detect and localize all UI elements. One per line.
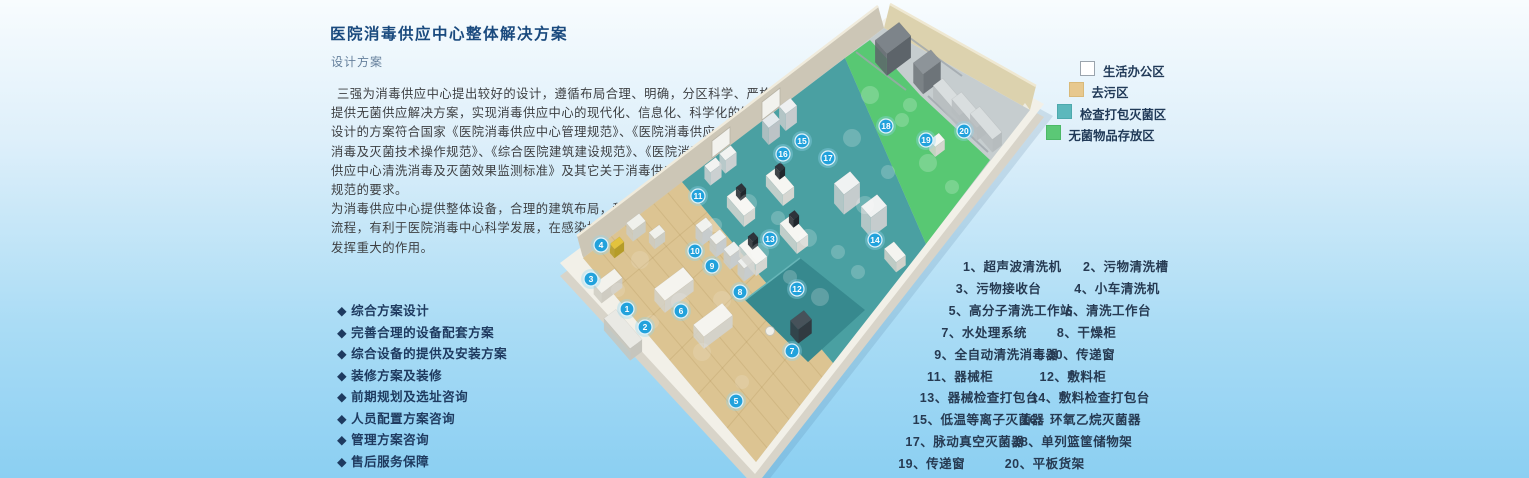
floor-marker-20: 20 [954, 121, 974, 141]
floor-marker-8: 8 [730, 282, 750, 302]
svg-text:4: 4 [599, 240, 604, 250]
floor-marker-10: 10 [685, 241, 705, 261]
floor-marker-13: 13 [760, 229, 780, 249]
floor-marker-7: 7 [782, 341, 802, 361]
svg-text:7: 7 [790, 346, 795, 356]
svg-text:20: 20 [959, 126, 969, 136]
svg-text:2: 2 [643, 322, 648, 332]
svg-text:1: 1 [625, 304, 630, 314]
svg-text:8: 8 [738, 287, 743, 297]
svg-text:10: 10 [690, 246, 700, 256]
floor-marker-11: 11 [688, 186, 708, 206]
svg-text:19: 19 [921, 135, 931, 145]
svg-text:12: 12 [792, 284, 802, 294]
floor-marker-9: 9 [702, 256, 722, 276]
floor-marker-2: 2 [635, 317, 655, 337]
page: 医院消毒供应中心整体解决方案 设计方案 三强为消毒供应中心提出较好的设计，遵循布… [0, 0, 1529, 478]
floorplan-svg: 1234567891011121314151617181920 [0, 0, 1529, 478]
floor-marker-17: 17 [818, 148, 838, 168]
floor-marker-12: 12 [787, 279, 807, 299]
column [766, 327, 775, 336]
floor-marker-19: 19 [916, 130, 936, 150]
svg-text:3: 3 [589, 274, 594, 284]
floor-marker-18: 18 [876, 116, 896, 136]
svg-text:18: 18 [881, 121, 891, 131]
svg-text:17: 17 [823, 153, 833, 163]
floor-marker-1: 1 [617, 299, 637, 319]
svg-text:9: 9 [710, 261, 715, 271]
floor-marker-14: 14 [865, 230, 885, 250]
svg-text:13: 13 [765, 234, 775, 244]
floor-marker-16: 16 [773, 144, 793, 164]
floorplan: 1234567891011121314151617181920 [0, 0, 1529, 478]
floor-marker-4: 4 [591, 235, 611, 255]
floor-marker-5: 5 [726, 391, 746, 411]
svg-text:11: 11 [694, 191, 703, 201]
svg-text:14: 14 [870, 235, 880, 245]
floor-marker-3: 3 [581, 269, 601, 289]
svg-text:6: 6 [679, 306, 684, 316]
floor-marker-15: 15 [792, 131, 812, 151]
svg-text:16: 16 [778, 149, 788, 159]
floor-marker-6: 6 [671, 301, 691, 321]
svg-text:5: 5 [734, 396, 739, 406]
svg-text:15: 15 [797, 136, 807, 146]
